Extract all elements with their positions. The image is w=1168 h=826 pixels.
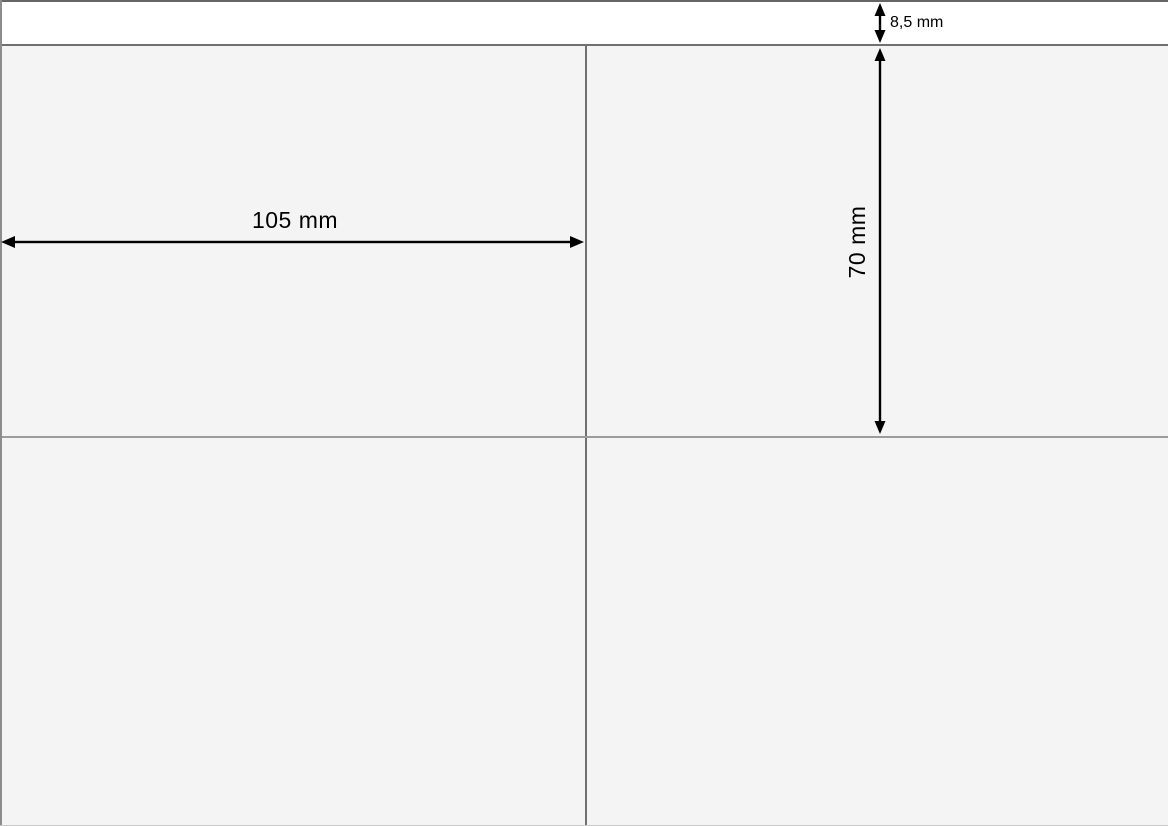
width-dimension-label: 105 mm — [249, 207, 341, 233]
label-cell-bottom-left — [2, 438, 585, 826]
label-cell-top-right — [587, 46, 1168, 436]
top-margin-area — [0, 2, 1168, 44]
sheet-left-border — [0, 0, 2, 826]
label-sheet-preview: 105 mm 70 mm 8,5 mm — [0, 0, 1168, 826]
label-cell-top-left — [2, 46, 585, 436]
row-divider-line — [0, 436, 1168, 438]
height-dimension-label: 70 mm — [844, 196, 870, 288]
column-divider-line — [585, 44, 587, 826]
label-cell-bottom-right — [587, 438, 1168, 826]
top-margin-dimension-label: 8,5 mm — [890, 11, 943, 35]
